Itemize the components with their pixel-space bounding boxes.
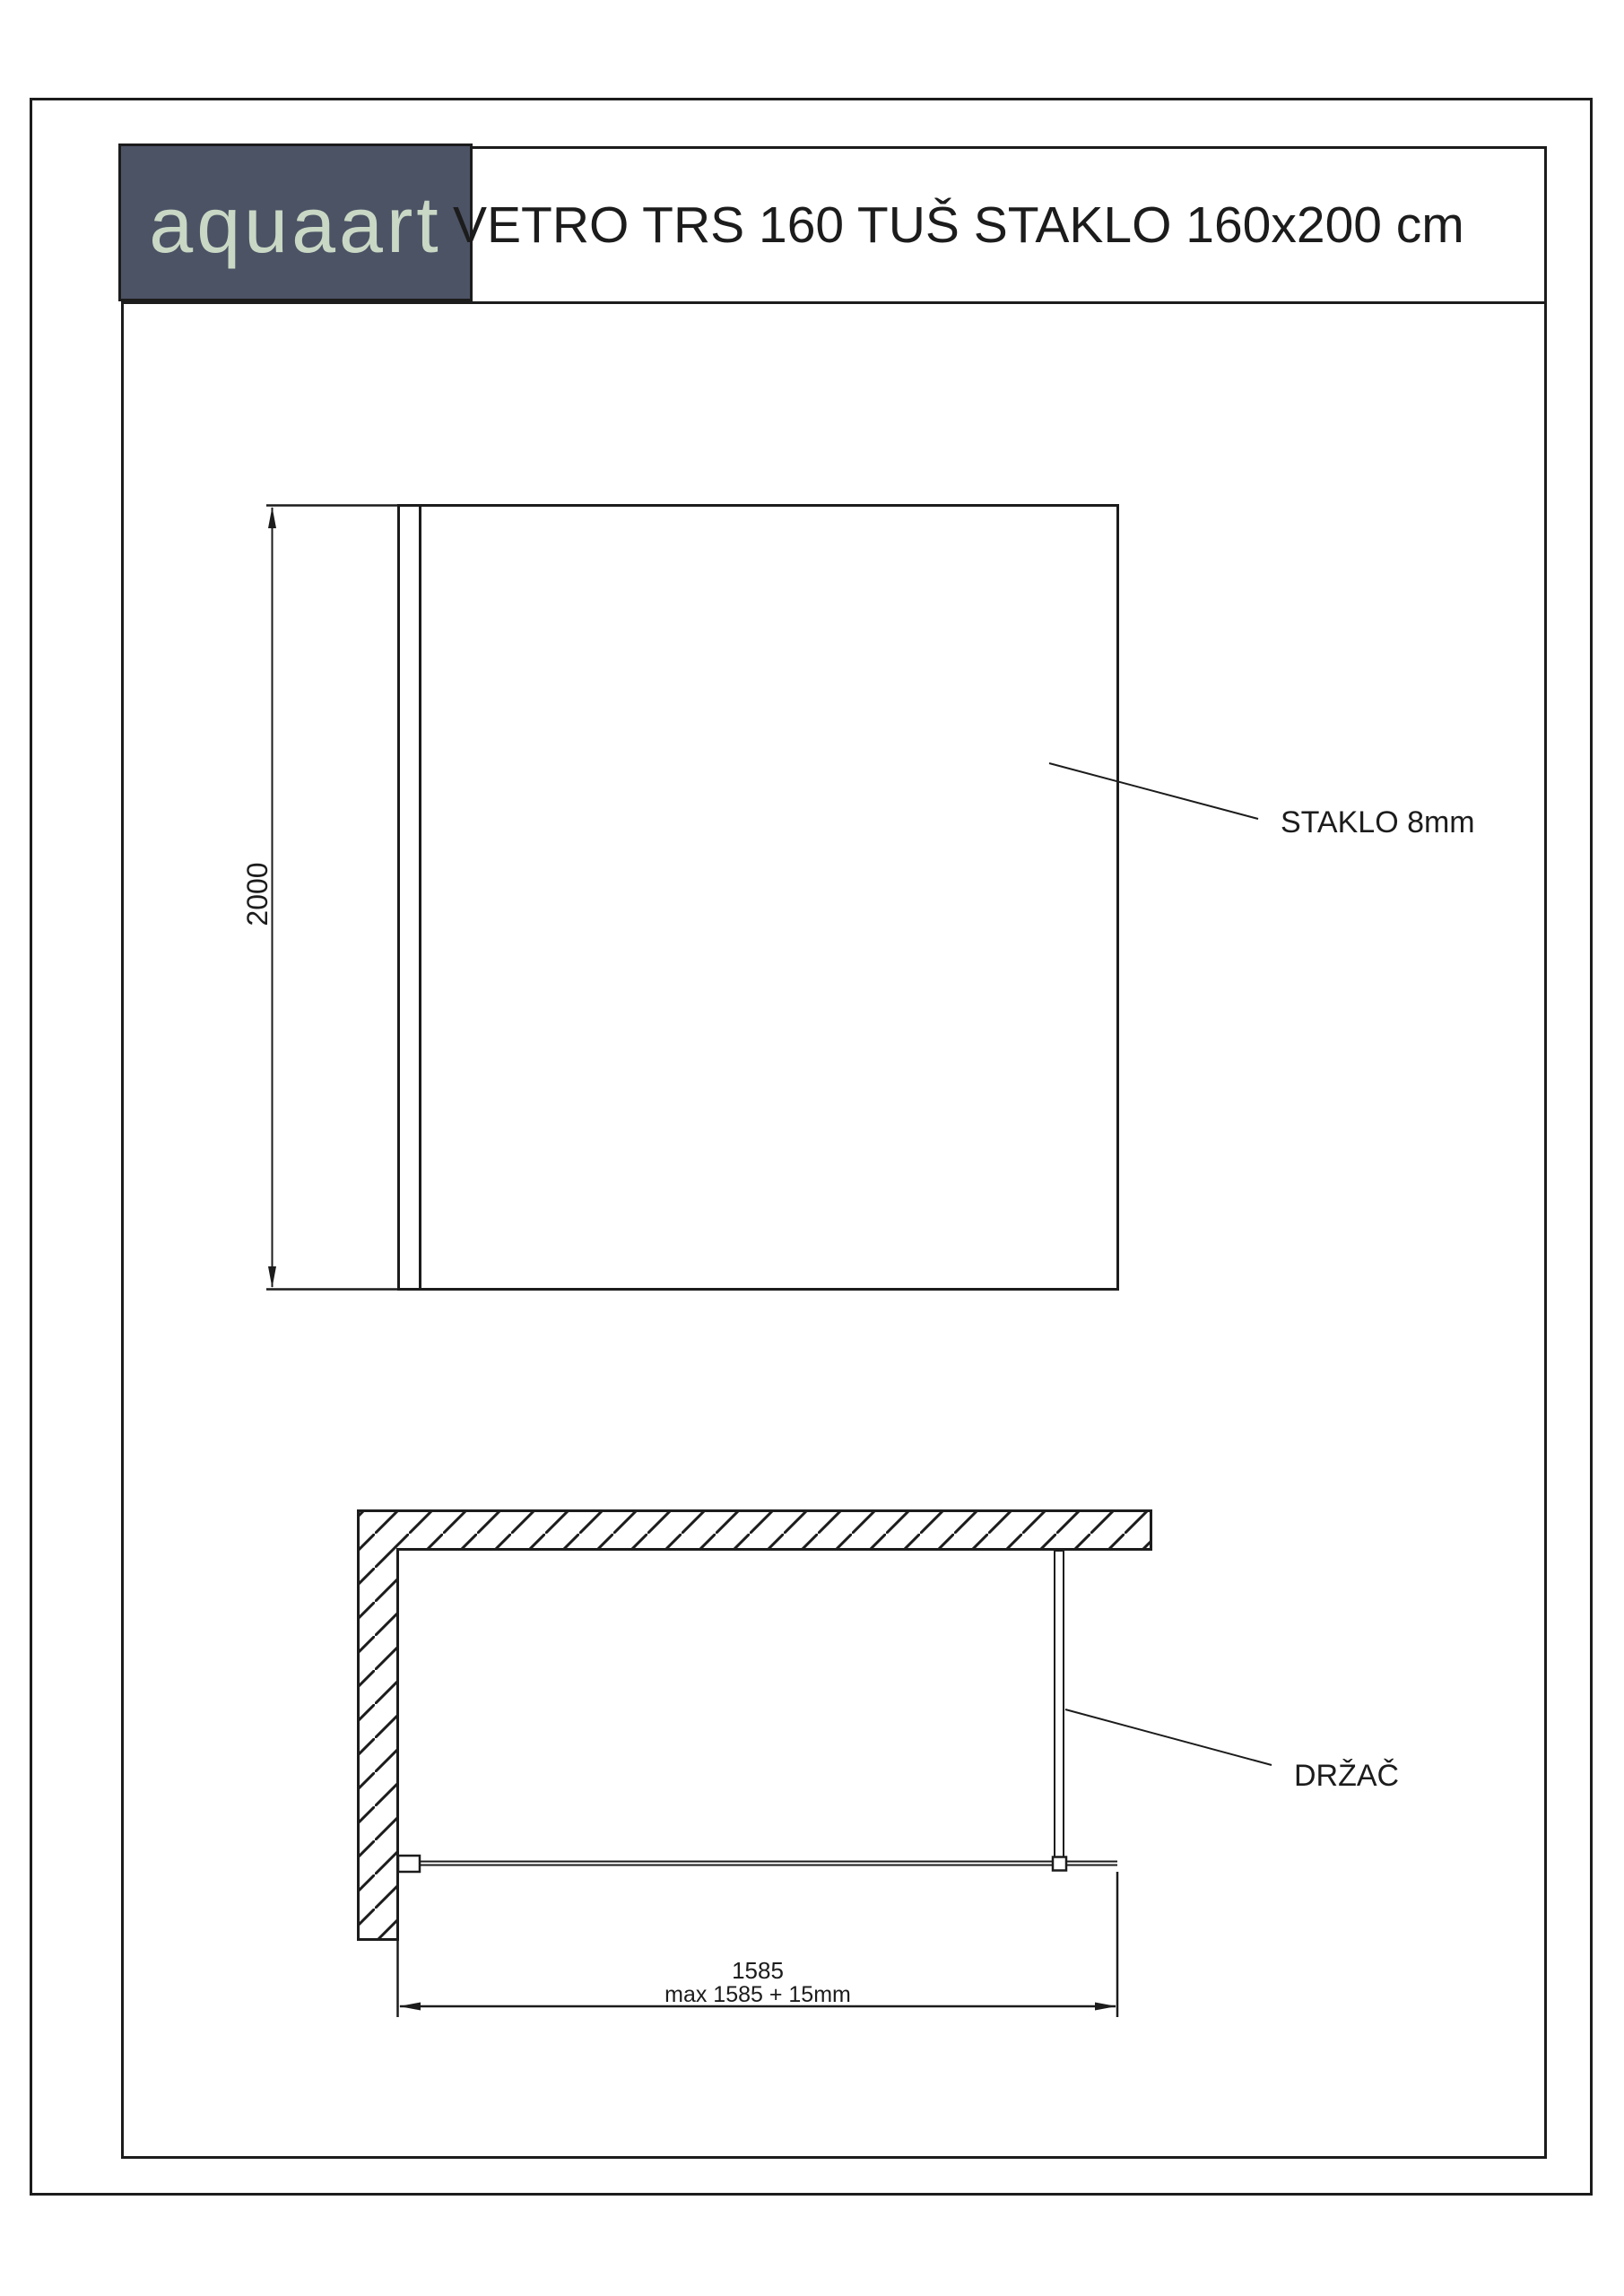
cad-linework <box>0 0 1624 2296</box>
holder-leader-line <box>1065 1709 1272 1765</box>
wall-mount-profile <box>398 1856 420 1872</box>
holder-foot <box>1053 1857 1066 1871</box>
holder-bar <box>1055 1551 1064 1857</box>
front-view-drawing <box>266 506 1258 1290</box>
glass-panel-outline <box>399 506 1118 1290</box>
plan-view-drawing <box>359 1511 1272 2018</box>
dimension-arrow-right <box>1095 2003 1116 2011</box>
holder-label: DRŽAČ <box>1294 1758 1399 1794</box>
wall-hatched-section <box>359 1511 1151 1940</box>
glass-thickness-label: STAKLO 8mm <box>1281 804 1475 840</box>
height-dimension-text: 2000 <box>241 831 274 957</box>
width-dimension-text: 1585 <box>668 1958 847 1983</box>
width-dimension-note: max 1585 + 15mm <box>614 1983 901 2007</box>
drawing-sheet: aquaart VETRO TRS 160 TUŠ STAKLO 160x200… <box>0 0 1624 2296</box>
glass-leader-line <box>1049 763 1258 819</box>
dimension-arrow-up <box>268 507 276 528</box>
dimension-arrow-left <box>399 2003 421 2011</box>
dimension-arrow-down <box>268 1266 276 1288</box>
